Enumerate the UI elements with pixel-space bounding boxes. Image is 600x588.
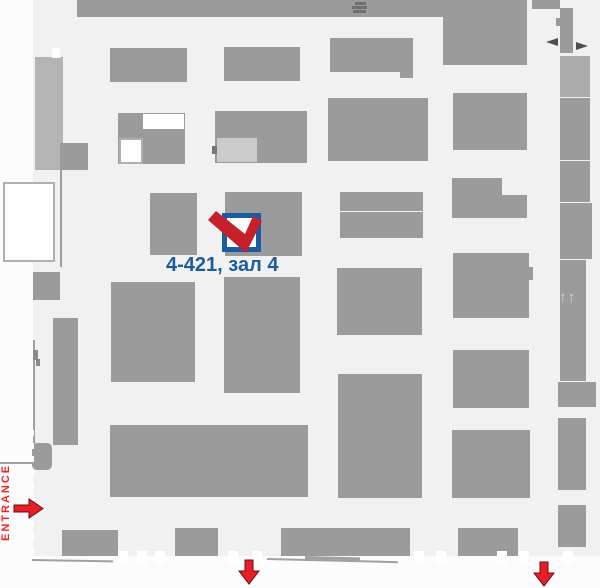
booth-block [453, 253, 529, 318]
booth-block [502, 195, 527, 218]
booth-block [338, 374, 422, 498]
stage-icon [353, 10, 366, 13]
booth-block [60, 143, 88, 170]
inner-area [217, 138, 257, 162]
booth-block [560, 8, 573, 53]
exit-arrow-icon [533, 561, 555, 587]
booth-block [337, 268, 422, 335]
door-tick [137, 551, 147, 564]
wall-line [60, 170, 62, 267]
stage-icon [352, 6, 367, 9]
booth-label: 4-421, зал 4 [166, 254, 278, 277]
white-area [3, 182, 55, 262]
booth-block [62, 530, 118, 556]
door-tick [118, 551, 128, 564]
booth-block [529, 267, 533, 280]
door-tick [519, 551, 529, 564]
booth-block [558, 505, 586, 547]
booth-block [453, 350, 529, 408]
booth-block [110, 425, 308, 497]
booth-block [400, 98, 428, 161]
door-mark [212, 146, 217, 154]
door-tick [436, 551, 446, 564]
booth-block [53, 318, 78, 445]
booth-block [32, 443, 52, 470]
booth-block [150, 193, 197, 255]
door-tick [497, 551, 507, 564]
booth-block [110, 48, 187, 82]
booth-block [328, 98, 402, 161]
door-mark [36, 359, 40, 366]
booth-block [224, 47, 300, 81]
booth-block [340, 192, 423, 211]
entrance-label: ENTRANCE [0, 471, 15, 541]
booth-block [558, 418, 586, 490]
stairs-icon: ↑↑ [559, 289, 589, 313]
booth-block [175, 528, 218, 556]
booth-block [224, 277, 300, 393]
passage-arrow-icon [546, 36, 560, 48]
door-tick [155, 551, 165, 564]
booth-block [35, 57, 63, 170]
booth-block [400, 38, 413, 78]
passage-arrow-icon [574, 40, 588, 52]
stage-icon [355, 2, 366, 5]
booth-block [560, 260, 586, 381]
booth-block [558, 382, 596, 407]
booth-block [560, 56, 590, 97]
booth-block [453, 93, 527, 150]
booth-block [340, 212, 423, 238]
top-wall [77, 0, 527, 17]
door-tick [563, 551, 573, 564]
booth-block [111, 282, 195, 382]
checkmark-icon [205, 205, 265, 255]
white-area [119, 138, 143, 164]
booth-block [330, 38, 400, 72]
booth-block [532, 0, 560, 9]
white-area [52, 48, 60, 58]
white-area [143, 114, 184, 129]
booth-block [458, 528, 518, 556]
booth-block [452, 178, 502, 218]
wall-line [32, 559, 113, 562]
entrance-arrow-icon [14, 498, 44, 520]
booth-block [560, 161, 590, 202]
booth-block [443, 17, 527, 65]
booth-block [452, 430, 530, 498]
booth-block [560, 203, 592, 259]
exit-arrow-icon [238, 559, 260, 585]
door-tick [228, 551, 238, 564]
booth-block [556, 18, 560, 26]
floor-edge-dash [31, 430, 34, 556]
booth-block [560, 98, 590, 160]
booth-block [281, 528, 410, 556]
booth-block [33, 272, 60, 300]
door-tick [414, 551, 424, 564]
floor-plan: ↑↑ 4-421, зал 4 ENTRANCE [0, 0, 600, 588]
